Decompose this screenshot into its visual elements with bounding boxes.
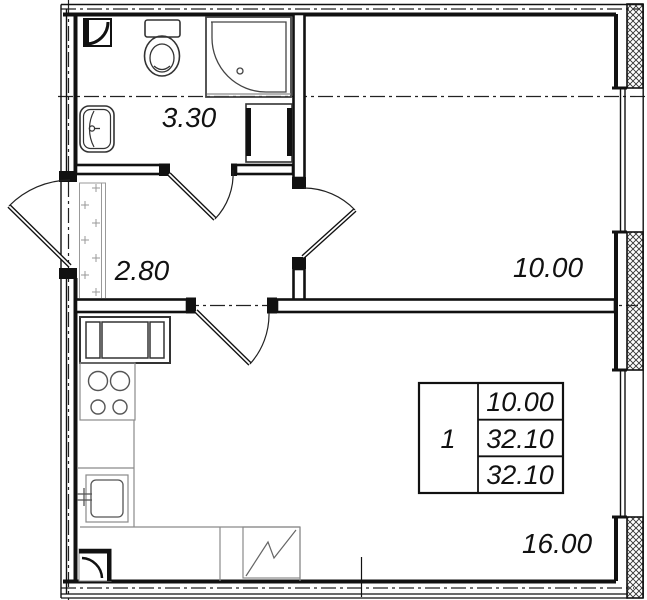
kitchen-door xyxy=(196,311,269,364)
vent-shaft-corner-icon xyxy=(79,549,112,581)
room-door xyxy=(303,188,355,257)
vent-shaft-icon xyxy=(84,19,111,46)
washing-machine-icon xyxy=(246,104,292,162)
hatched-wall-piers xyxy=(627,4,643,598)
table-value-total-area-balcony: 32.10 xyxy=(486,460,554,490)
floor-plan: 1 10.00 32.10 32.10 3.30 2.80 10.00 16.0… xyxy=(0,0,647,600)
kitchen-cabinet-icon xyxy=(80,317,170,363)
bathroom-area-label: 3.30 xyxy=(162,102,217,133)
room-area-label: 10.00 xyxy=(513,252,583,283)
bathroom-door xyxy=(169,170,233,219)
toilet-icon xyxy=(145,20,181,76)
table-value-total-area: 32.10 xyxy=(486,424,554,454)
table-value-living-area: 10.00 xyxy=(486,387,554,417)
floor-plan-drawing: 1 10.00 32.10 32.10 3.30 2.80 10.00 16.0… xyxy=(0,0,647,600)
window-room xyxy=(612,88,627,232)
appliance-zigzag-icon xyxy=(243,527,300,578)
rooms-count: 1 xyxy=(440,424,455,454)
hallway-area-label: 2.80 xyxy=(114,255,170,286)
shower-icon xyxy=(206,17,291,97)
hallway-riser-strip xyxy=(79,183,106,298)
kitchen-sink-icon xyxy=(77,475,128,522)
plus-marks xyxy=(81,184,100,296)
washbasin-icon xyxy=(80,106,114,152)
kitchen-living-area-label: 16.00 xyxy=(522,528,592,559)
stove-icon xyxy=(80,363,135,420)
window-kitchen-living xyxy=(612,370,627,517)
area-info-table: 1 10.00 32.10 32.10 xyxy=(419,383,563,493)
